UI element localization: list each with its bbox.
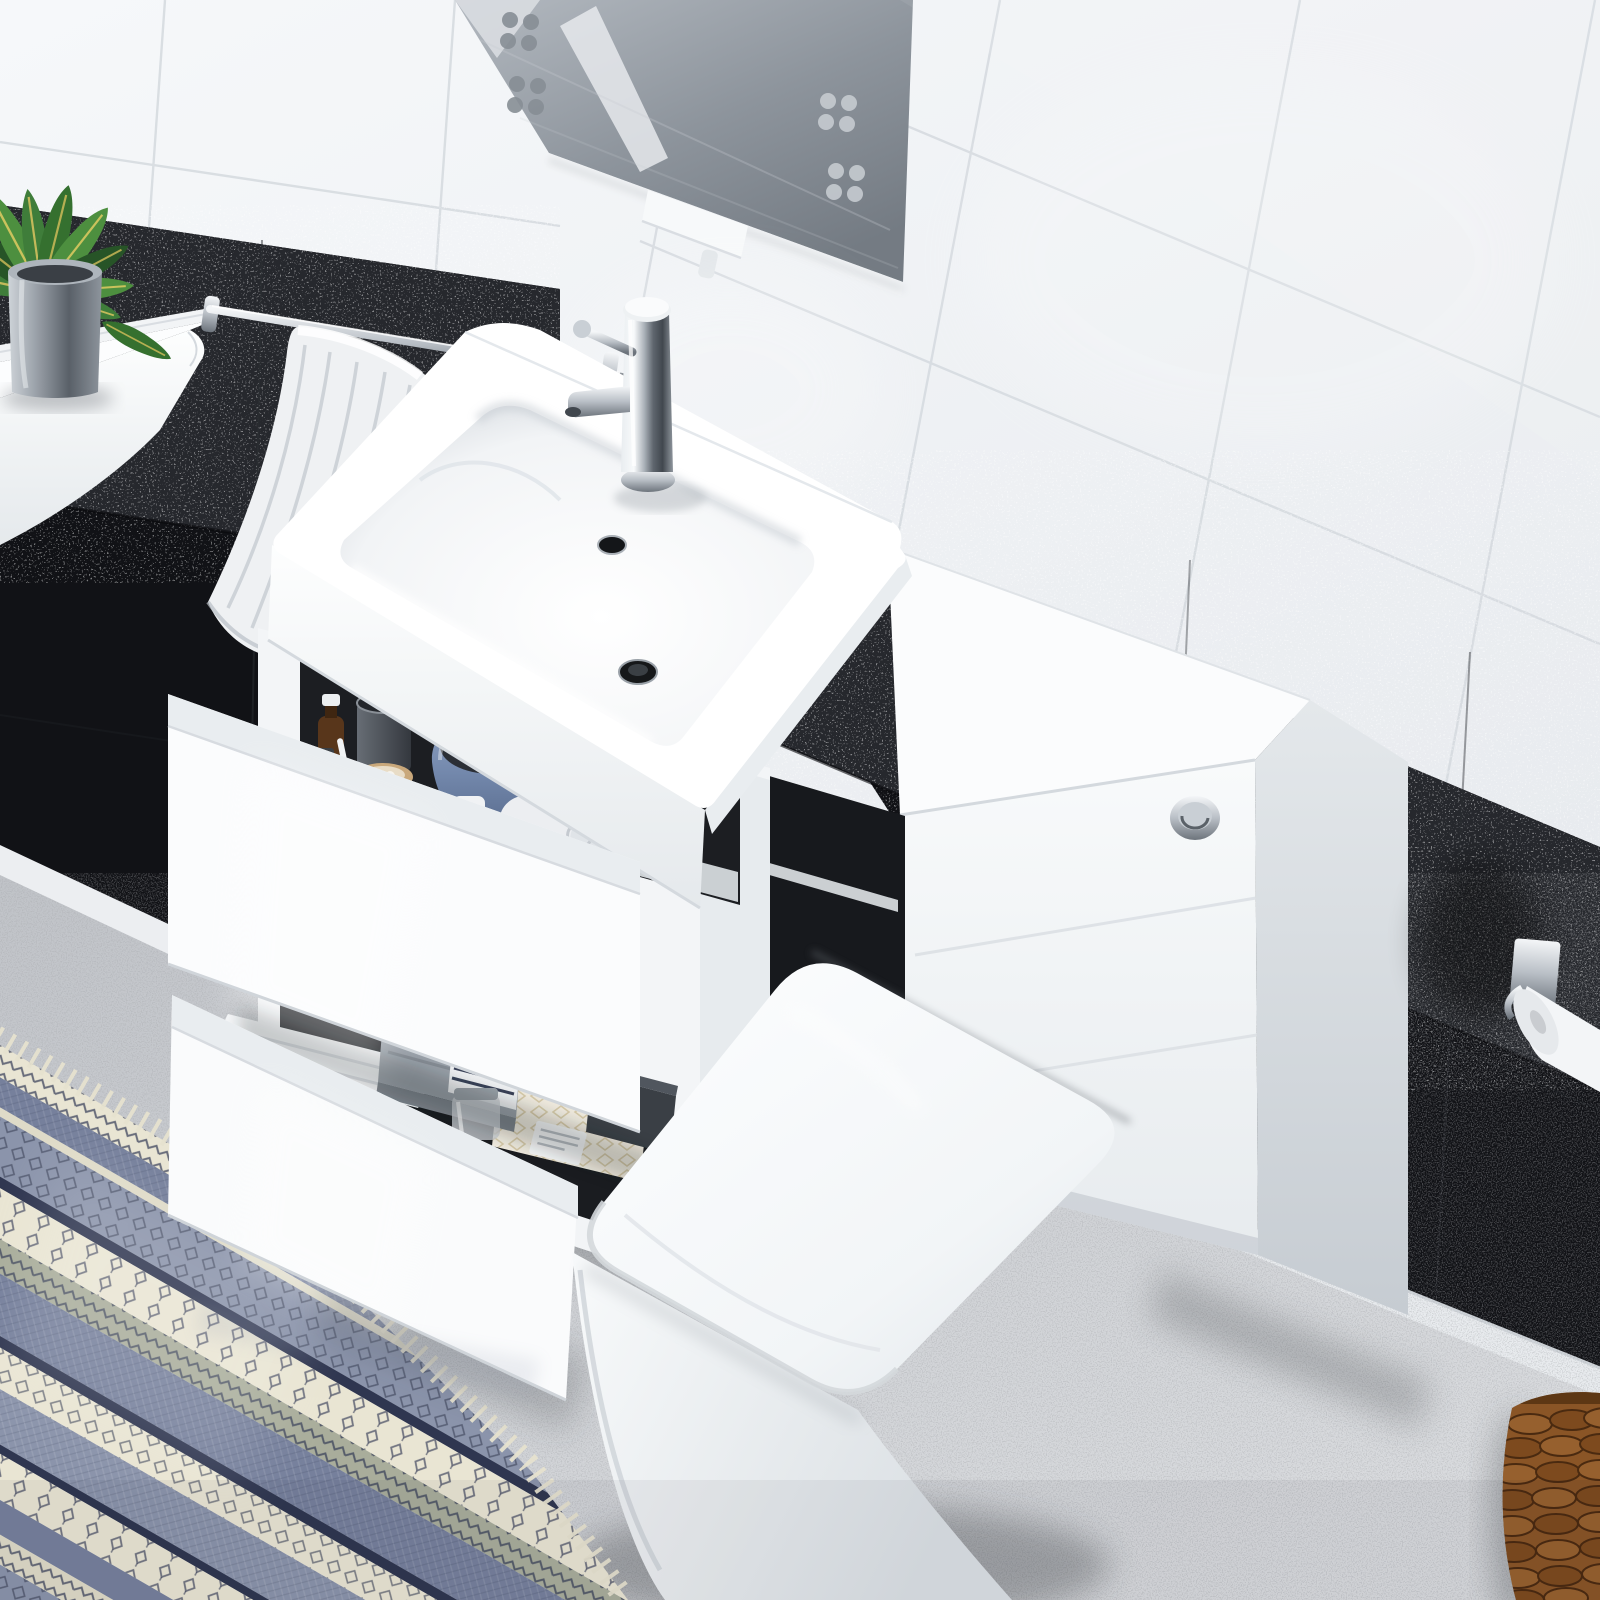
basin-drain bbox=[619, 660, 657, 684]
bottom-vignette bbox=[0, 1480, 1600, 1600]
pot-soil bbox=[17, 265, 93, 283]
scene-canvas bbox=[0, 0, 1600, 1600]
bathroom-scene bbox=[0, 0, 1600, 1600]
plant-pot bbox=[8, 259, 102, 398]
tap-cap-top bbox=[625, 297, 669, 317]
wc-unit-side bbox=[1255, 700, 1408, 1315]
flush-button-face[interactable] bbox=[1178, 802, 1212, 830]
overflow-hole bbox=[598, 536, 626, 554]
flush-button[interactable] bbox=[1170, 796, 1220, 840]
spout-outlet bbox=[565, 407, 581, 417]
